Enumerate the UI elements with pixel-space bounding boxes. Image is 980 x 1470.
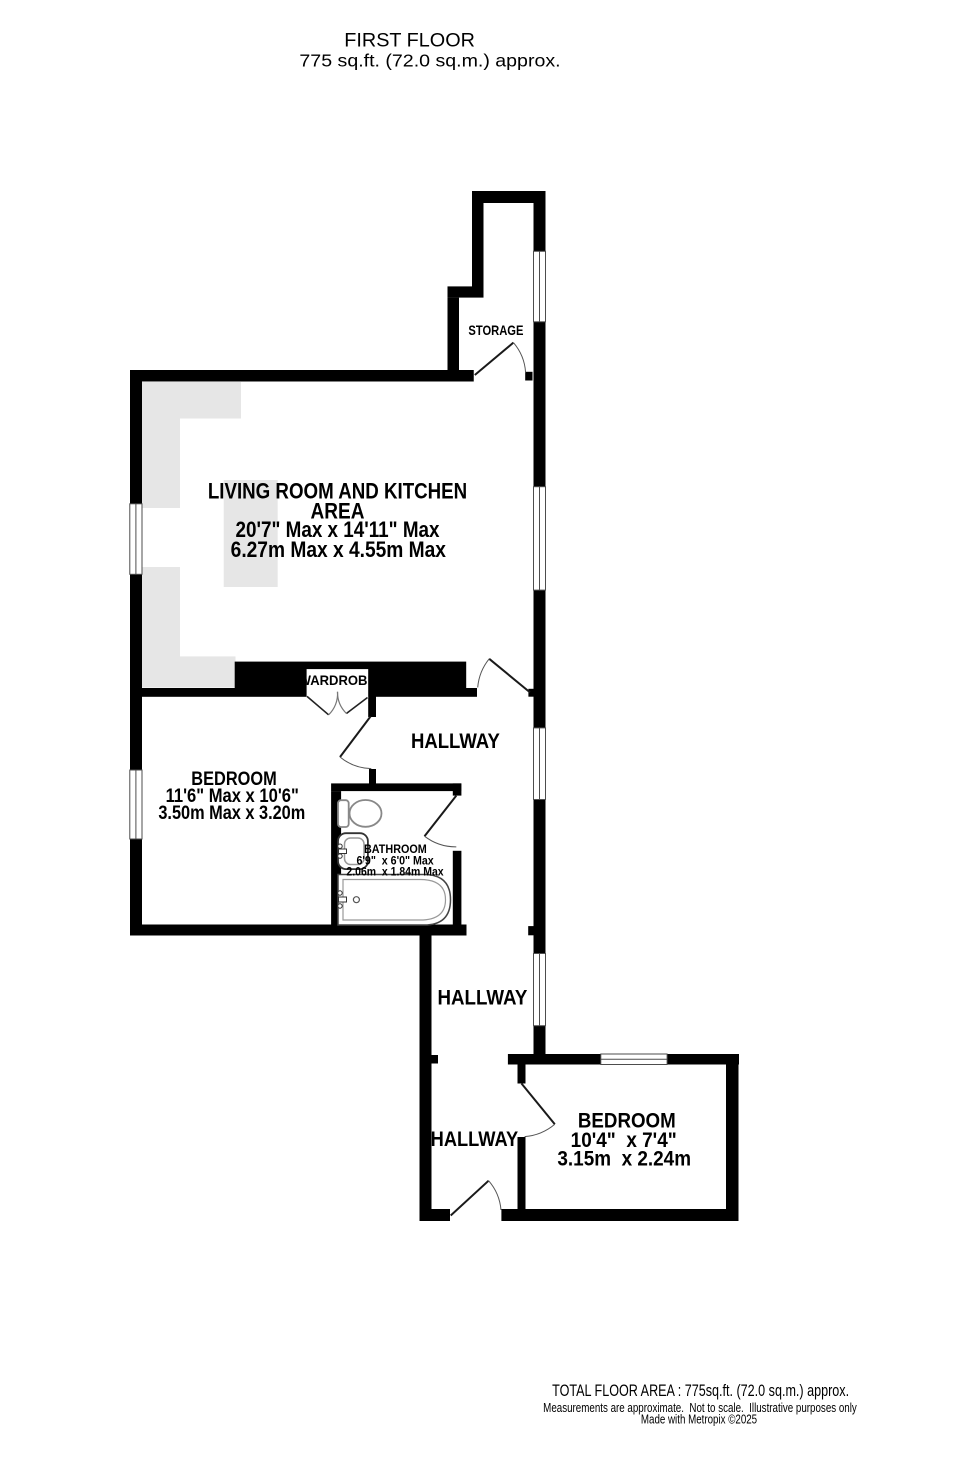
svg-text:FIRST FLOOR: FIRST FLOOR xyxy=(344,30,475,52)
svg-text:HALLWAY: HALLWAY xyxy=(431,1128,518,1152)
svg-text:WARDROBE: WARDROBE xyxy=(299,673,377,689)
svg-text:HALLWAY: HALLWAY xyxy=(411,730,500,753)
svg-text:2.06m x 1.84m Max: 2.06m x 1.84m Max xyxy=(346,866,444,879)
svg-text:3.50m Max x 3.20m: 3.50m Max x 3.20m xyxy=(158,802,305,824)
svg-text:TOTAL FLOOR AREA : 775sq.ft. (: TOTAL FLOOR AREA : 775sq.ft. (72.0 sq.m.… xyxy=(552,1382,849,1400)
svg-text:775 sq.ft. (72.0 sq.m.) approx: 775 sq.ft. (72.0 sq.m.) approx. xyxy=(299,50,560,70)
svg-text:Made with Metropix ©2025: Made with Metropix ©2025 xyxy=(641,1414,757,1427)
svg-text:STORAGE: STORAGE xyxy=(468,323,523,338)
svg-text:3.15m x 2.24m: 3.15m x 2.24m xyxy=(557,1147,691,1170)
svg-text:HALLWAY: HALLWAY xyxy=(437,986,527,1009)
svg-text:6.27m Max x 4.55m Max: 6.27m Max x 4.55m Max xyxy=(231,538,447,563)
